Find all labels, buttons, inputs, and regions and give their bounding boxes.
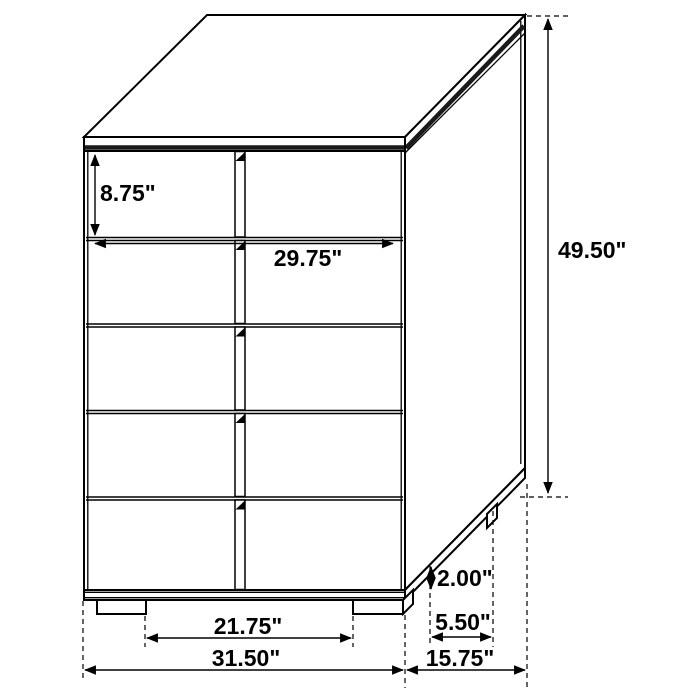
dimension-label: 5.50" [435, 609, 491, 635]
left-front-leg [97, 600, 146, 614]
right-front-leg [353, 600, 403, 614]
dimension-label: 8.75" [100, 180, 156, 206]
drawer-handle-strip [235, 241, 245, 324]
dimension-diagram: 8.75" 29.75" 49.50" 2.00" 5.50" [0, 0, 700, 700]
drawer-handle-strip [235, 500, 245, 590]
dimension-label: 21.75" [214, 613, 282, 639]
dimension-leg-height: 2.00" [431, 565, 493, 591]
chest-dimension-drawing: 8.75" 29.75" 49.50" 2.00" 5.50" [0, 0, 700, 700]
dimension-label: 29.75" [274, 245, 342, 271]
dimension-overall-height: 49.50" [520, 16, 626, 497]
dimension-label: 49.50" [558, 237, 626, 263]
dimension-front-leg-spacing: 21.75" [145, 613, 353, 647]
drawer-handle-strips [235, 152, 245, 590]
drawer-handle-strip [235, 152, 245, 238]
dimension-label: 15.75" [426, 645, 494, 671]
dimension-label: 2.00" [437, 565, 493, 591]
drawer-handle-strip [235, 414, 245, 497]
dimension-label: 31.50" [212, 645, 280, 671]
drawer-handle-strip [235, 327, 245, 410]
chest-drawing [84, 15, 525, 614]
front-base-rail [84, 590, 405, 600]
